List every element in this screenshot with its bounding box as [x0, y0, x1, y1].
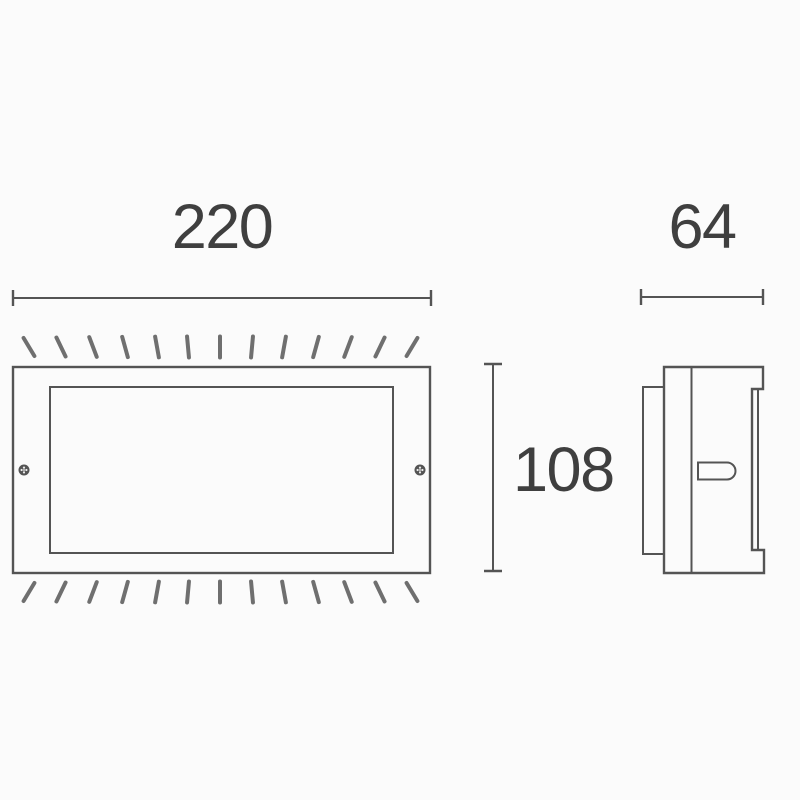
- light-ray-mark: [313, 582, 319, 602]
- height-dimension-label: 108: [513, 435, 614, 505]
- light-ray-mark: [251, 337, 253, 358]
- light-ray-mark: [344, 337, 351, 357]
- side-view-mounting-plate: [643, 387, 664, 554]
- side-view: [643, 367, 764, 573]
- light-ray-mark: [375, 583, 384, 602]
- left-screw-icon: [19, 465, 30, 476]
- light-ray-mark: [187, 337, 189, 358]
- light-ray-mark: [155, 337, 159, 358]
- light-ray-mark: [122, 582, 128, 602]
- light-ray-mark: [407, 338, 418, 356]
- light-ray-mark: [282, 582, 286, 603]
- light-ray-mark: [122, 337, 128, 357]
- height-dimension: 108: [484, 364, 614, 571]
- light-ray-mark: [187, 582, 189, 603]
- wall-lamp-dimension-drawing: 220 64 108: [0, 0, 800, 800]
- front-view-diffuser-panel: [50, 387, 393, 553]
- light-ray-mark: [251, 582, 253, 603]
- light-ray-mark: [282, 337, 286, 358]
- light-ray-mark: [313, 337, 319, 357]
- width-dimension: 220: [13, 192, 431, 306]
- light-ray-mark: [24, 338, 35, 356]
- light-ray-mark: [56, 338, 65, 357]
- depth-dimension: 64: [641, 192, 763, 305]
- light-ray-mark: [56, 583, 65, 602]
- light-ray-mark: [155, 582, 159, 603]
- light-ray-mark: [375, 338, 384, 357]
- technical-drawing-canvas: 220 64 108: [0, 0, 800, 800]
- depth-dimension-label: 64: [668, 192, 736, 262]
- top-light-ray-marks: [24, 337, 418, 358]
- light-ray-mark: [407, 583, 418, 601]
- light-ray-mark: [89, 337, 96, 357]
- side-view-body-outline: [664, 367, 764, 573]
- side-view-latch-tab: [698, 463, 736, 480]
- front-view: [13, 367, 430, 573]
- light-ray-mark: [344, 582, 351, 602]
- light-ray-mark: [89, 582, 96, 602]
- light-ray-mark: [24, 583, 35, 601]
- right-screw-icon: [415, 465, 426, 476]
- width-dimension-label: 220: [172, 192, 273, 262]
- bottom-light-ray-marks: [24, 582, 418, 603]
- front-view-outer-frame: [13, 367, 430, 573]
